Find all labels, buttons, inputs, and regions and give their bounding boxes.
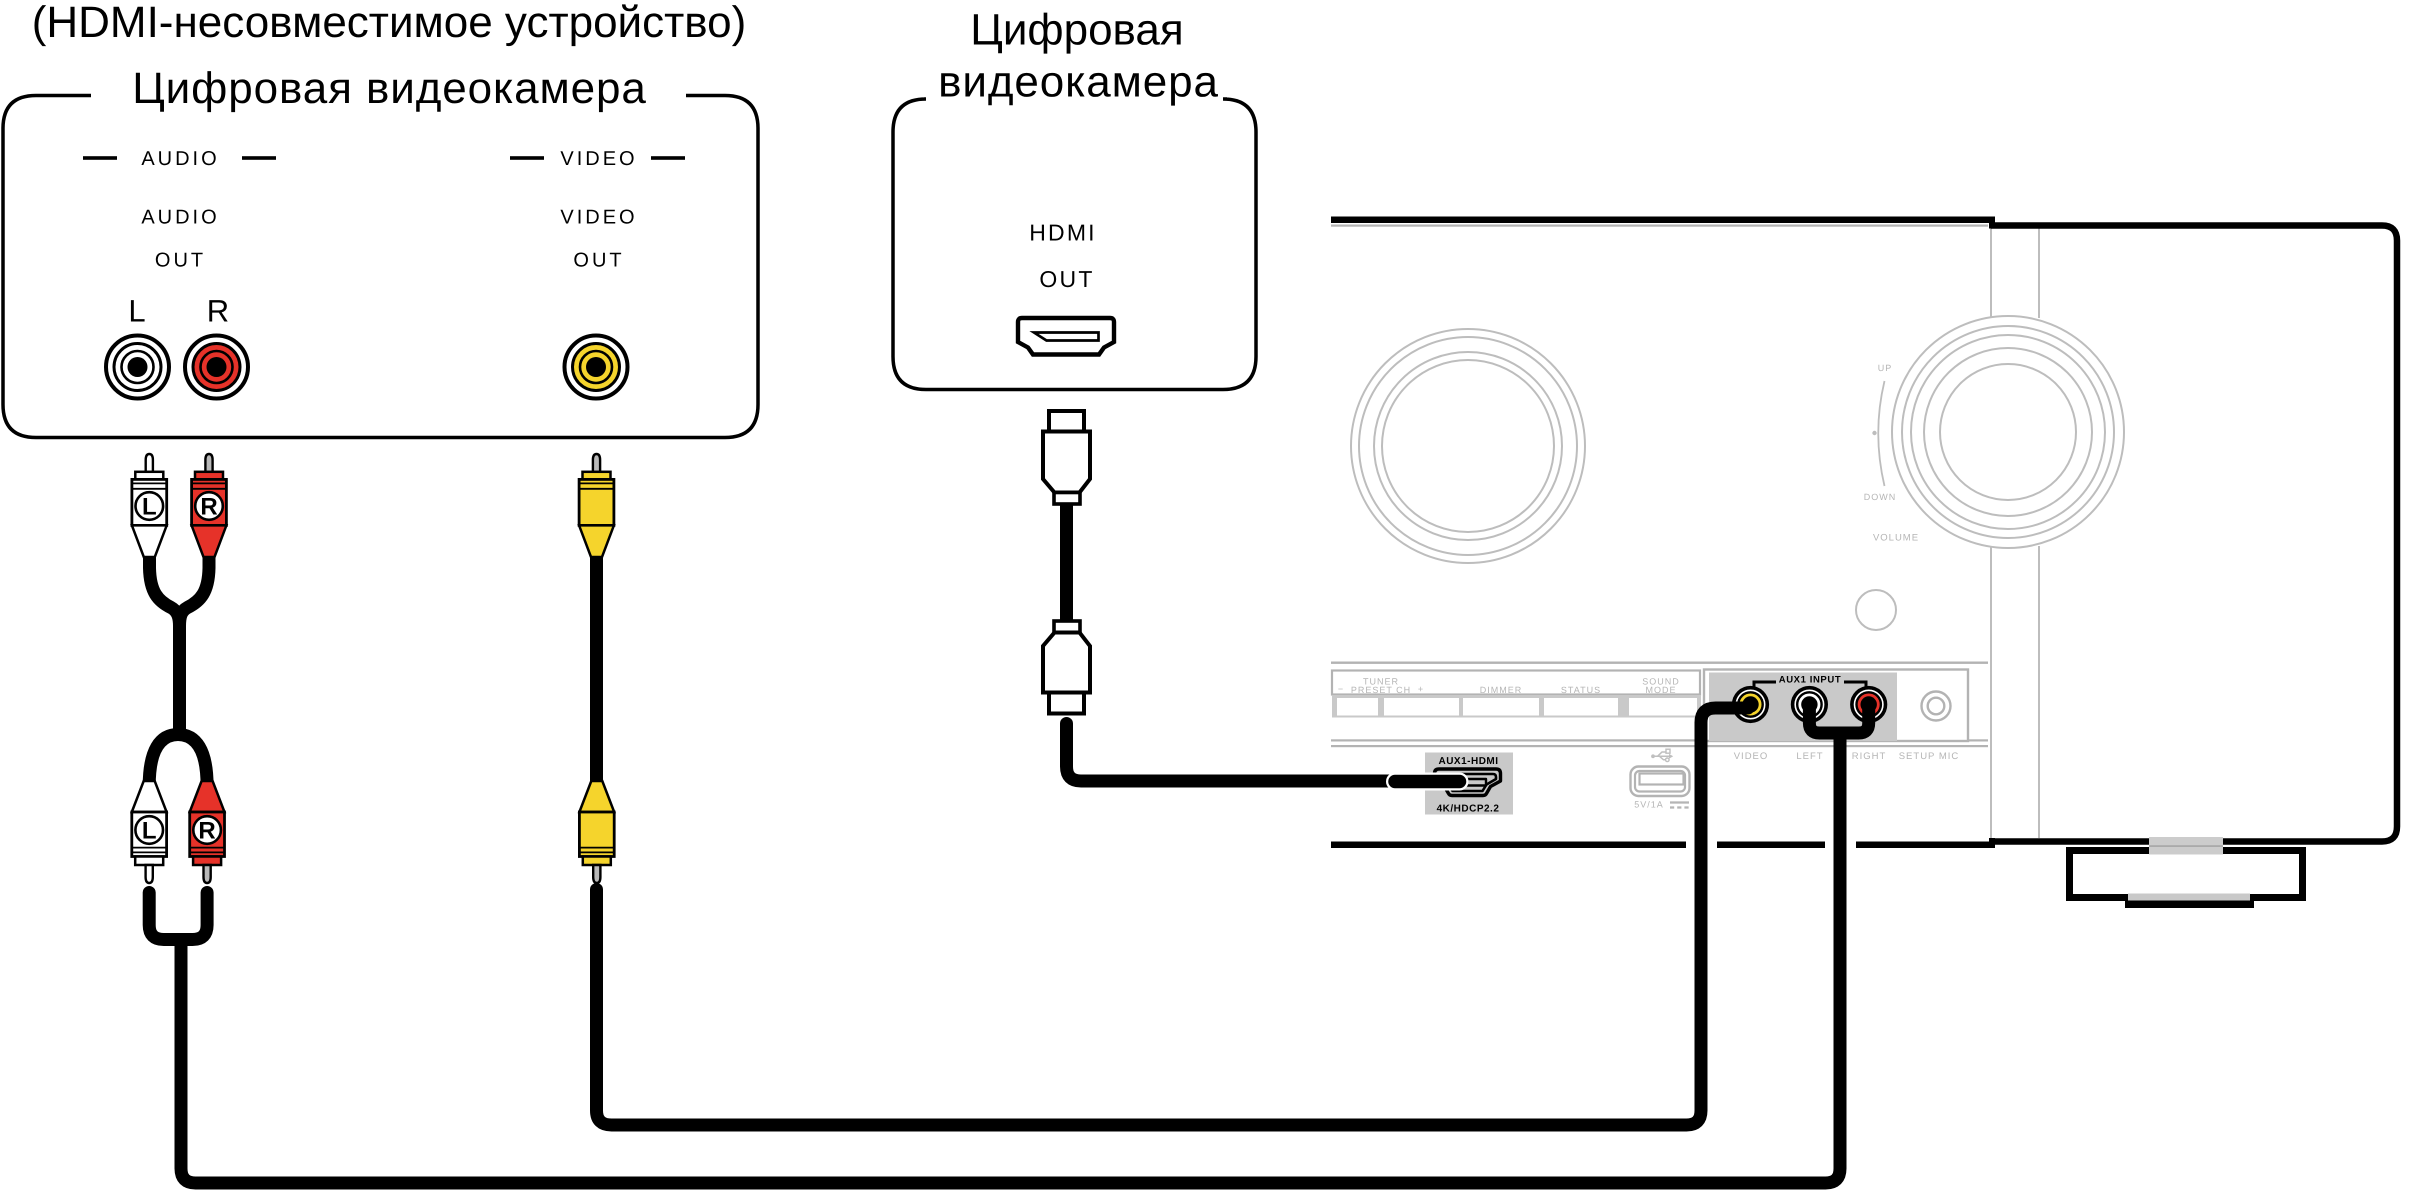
- svg-text:R: R: [200, 494, 217, 521]
- svg-text:Цифровая видеокамера: Цифровая видеокамера: [132, 64, 647, 113]
- svg-text:R: R: [207, 294, 229, 329]
- svg-text:L: L: [142, 818, 157, 845]
- svg-text:Цифровая: Цифровая: [970, 6, 1183, 55]
- svg-text:L: L: [128, 294, 145, 329]
- svg-text:(HDMI-несовместимое устройство: (HDMI-несовместимое устройство): [32, 0, 747, 47]
- svg-text:VIDEO: VIDEO: [560, 148, 637, 170]
- svg-text:RIGHT: RIGHT: [1852, 751, 1887, 762]
- svg-text:видеокамера: видеокамера: [938, 58, 1219, 107]
- svg-text:5V/1A: 5V/1A: [1634, 800, 1664, 810]
- svg-text:AUX1 INPUT: AUX1 INPUT: [1779, 675, 1841, 686]
- svg-text:MODE: MODE: [1646, 685, 1677, 695]
- svg-text:DOWN: DOWN: [1864, 492, 1897, 502]
- svg-text:+: +: [1418, 684, 1424, 694]
- svg-text:SETUP MIC: SETUP MIC: [1899, 751, 1960, 762]
- svg-text:AUX1-HDMI: AUX1-HDMI: [1438, 756, 1498, 767]
- svg-text:R: R: [198, 818, 215, 845]
- svg-text:HDMI: HDMI: [1029, 220, 1097, 246]
- svg-text:OUT: OUT: [1039, 266, 1094, 292]
- svg-text:L: L: [142, 494, 157, 521]
- svg-text:LEFT: LEFT: [1796, 751, 1823, 762]
- svg-text:−: −: [1338, 684, 1344, 694]
- svg-text:OUT: OUT: [155, 250, 206, 272]
- svg-text:4K/HDCP2.2: 4K/HDCP2.2: [1437, 804, 1500, 815]
- svg-text:DIMMER: DIMMER: [1480, 685, 1523, 695]
- svg-text:UP: UP: [1878, 363, 1893, 373]
- svg-text:PRESET CH: PRESET CH: [1351, 685, 1411, 695]
- svg-text:VOLUME: VOLUME: [1873, 533, 1919, 544]
- svg-text:STATUS: STATUS: [1561, 685, 1601, 695]
- svg-text:VIDEO: VIDEO: [1734, 751, 1769, 762]
- svg-text:OUT: OUT: [573, 250, 624, 272]
- svg-text:AUDIO: AUDIO: [141, 207, 219, 229]
- svg-text:AUDIO: AUDIO: [141, 148, 219, 170]
- svg-text:VIDEO: VIDEO: [560, 207, 637, 229]
